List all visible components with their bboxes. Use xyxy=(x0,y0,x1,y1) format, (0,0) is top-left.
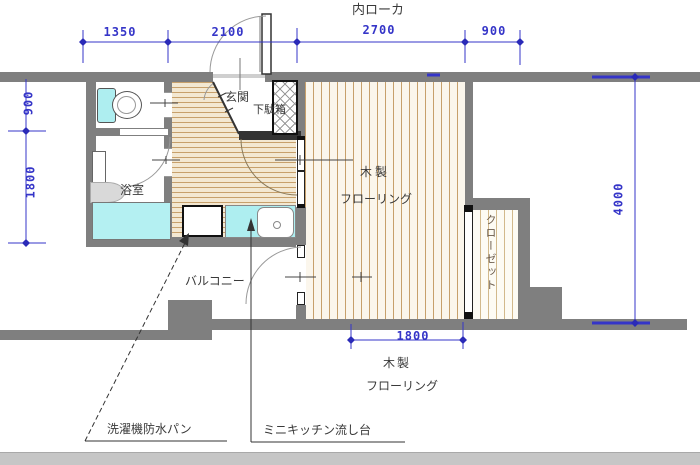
plan-linework xyxy=(0,0,700,465)
main-room-label-1: 木製 xyxy=(360,165,390,179)
floor-plan: 内ローカ 1350 2100 2700 900 900 1800 4000 18… xyxy=(0,0,700,465)
dimension-markers xyxy=(22,38,639,344)
bottom-bar xyxy=(0,452,700,465)
dim-top-1350: 1350 xyxy=(104,25,137,39)
shoe-box-label: 下駄箱 xyxy=(253,103,286,117)
entrance-label: 玄関 xyxy=(225,90,249,104)
dim-right-4000: 4000 xyxy=(611,183,625,216)
dimension-lines xyxy=(8,28,650,349)
dim-top-2700: 2700 xyxy=(363,23,396,37)
balcony-label: バルコニー xyxy=(185,274,245,288)
bathroom-label: 浴室 xyxy=(120,183,144,197)
dim-bottom-1800: 1800 xyxy=(397,329,430,343)
mini-kitchen-callout: ミニキッチン流し台 xyxy=(263,423,371,437)
callout-leaders xyxy=(85,218,405,442)
flooring-note-2: フローリング xyxy=(366,379,438,393)
closet-label: クローゼット xyxy=(483,214,497,318)
balcony-door-arc xyxy=(246,247,301,304)
dim-left-900: 900 xyxy=(21,91,35,116)
door-ticks xyxy=(150,99,372,282)
main-room-label-2: フローリング xyxy=(340,192,412,206)
washer-pan-callout: 洗濯機防水パン xyxy=(107,422,192,436)
hallway-title: 内ローカ xyxy=(352,3,404,17)
dim-top-2100: 2100 xyxy=(212,25,245,39)
bathroom-door-arc xyxy=(121,137,170,187)
hall-door-arc xyxy=(241,139,297,195)
flooring-note-1: 木製 xyxy=(383,356,411,370)
dim-top-900: 900 xyxy=(482,24,507,38)
dim-left-1800: 1800 xyxy=(23,166,37,199)
